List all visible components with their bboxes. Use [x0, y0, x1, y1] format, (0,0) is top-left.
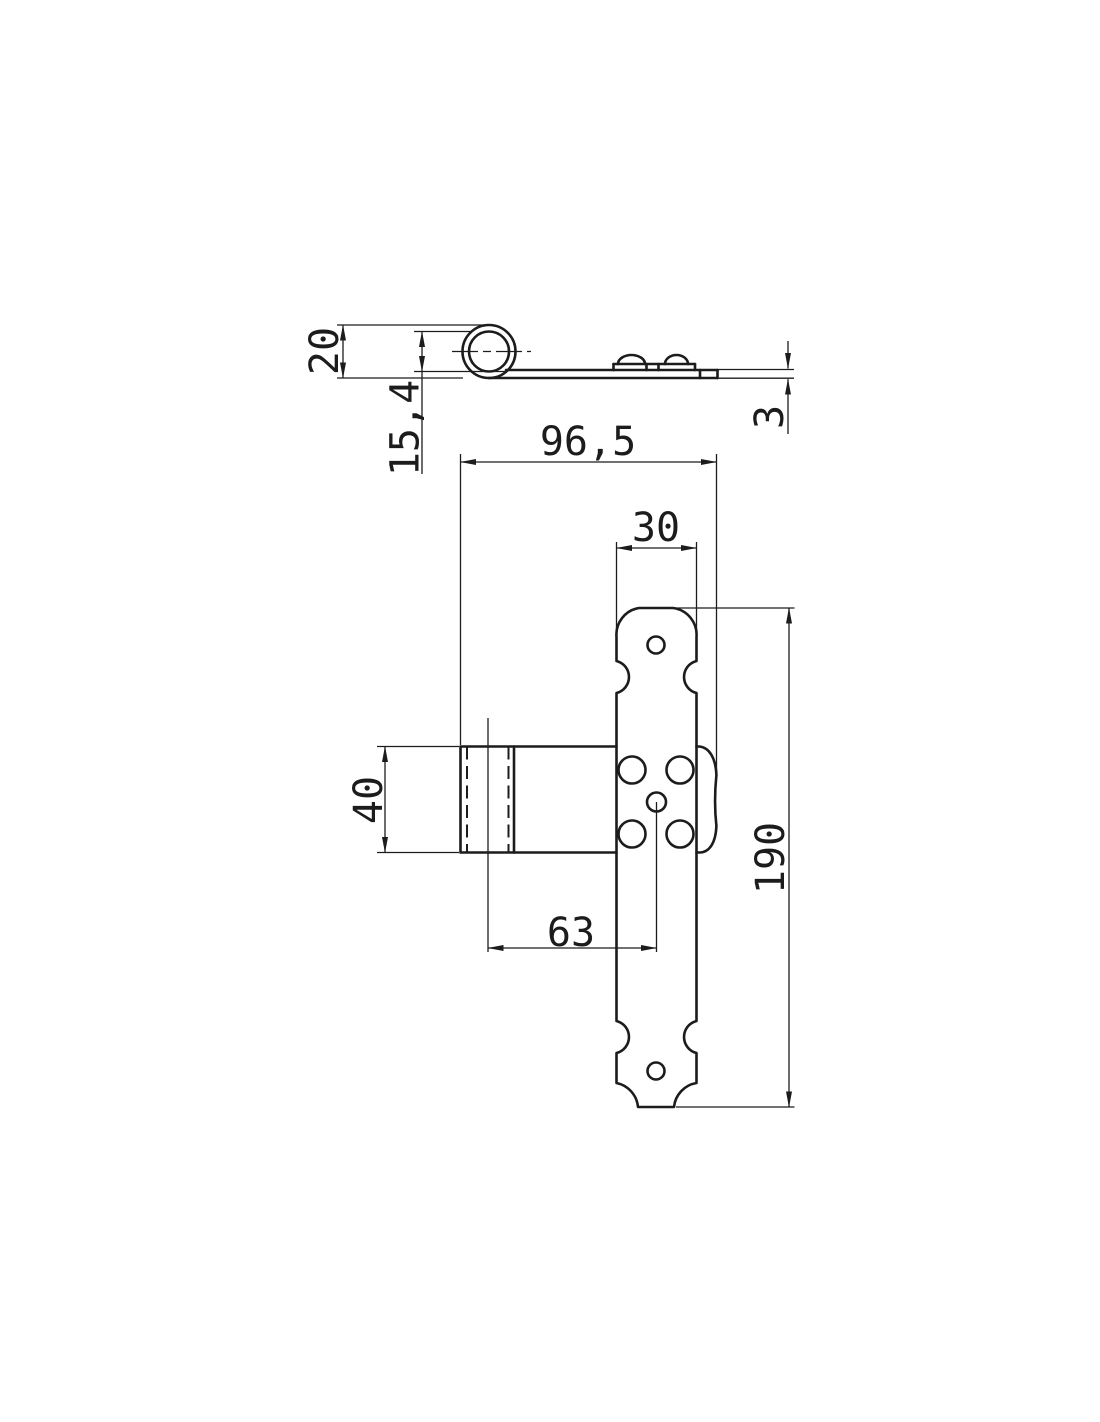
screw-hole-plate-bl: [619, 821, 646, 848]
dimension-label-63: 63: [547, 910, 595, 956]
emboss-dome-right: [665, 355, 688, 364]
screw-hole-plate-tr: [667, 757, 694, 784]
dimension-label-96-5: 96,5: [540, 419, 636, 465]
side-view: [452, 325, 718, 378]
dimension-30: 30: [617, 505, 697, 633]
screw-hole-plate-br: [667, 821, 694, 848]
dimension-label-190: 190: [748, 822, 794, 894]
screw-hole-top: [648, 637, 665, 654]
dimension-15-4: 15,4: [383, 332, 507, 477]
technical-drawing: 20 15,4 3 96,5: [0, 0, 1100, 1422]
drawing-page: 20 15,4 3 96,5: [0, 0, 1100, 1422]
dimension-3: 3: [718, 341, 795, 434]
hinge-outline: [461, 608, 717, 1107]
front-view: [461, 608, 717, 1107]
emboss-dome-left: [618, 355, 645, 364]
dimension-96-5: 96,5: [461, 419, 717, 775]
dimension-label-40: 40: [346, 776, 392, 824]
dimension-40: 40: [346, 747, 459, 853]
dimension-190: 190: [675, 608, 795, 1107]
dimension-label-3: 3: [747, 405, 793, 429]
dimension-label-30: 30: [632, 505, 680, 551]
screw-hole-plate-tl: [619, 757, 646, 784]
dimension-annotations: 20 15,4 3 96,5: [302, 325, 795, 1107]
dimension-label-15-4: 15,4: [383, 380, 429, 476]
screw-hole-bottom: [648, 1063, 665, 1080]
dimension-label-20: 20: [302, 327, 348, 375]
